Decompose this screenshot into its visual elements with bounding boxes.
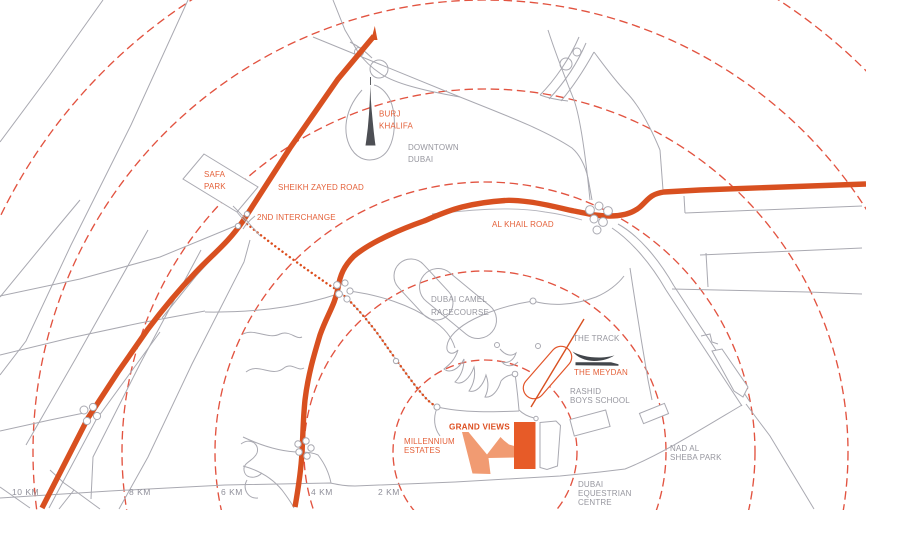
svg-text:GRAND VIEWS: GRAND VIEWS xyxy=(449,423,510,432)
svg-text:SAFA: SAFA xyxy=(204,170,226,179)
svg-text:DUBAI: DUBAI xyxy=(408,155,433,164)
svg-text:EQUESTRIAN: EQUESTRIAN xyxy=(578,489,632,498)
svg-text:BURJ: BURJ xyxy=(379,110,401,119)
svg-text:THE TRACK: THE TRACK xyxy=(573,334,620,343)
svg-text:4 KM: 4 KM xyxy=(311,487,333,497)
svg-text:2ND INTERCHANGE: 2ND INTERCHANGE xyxy=(257,213,336,222)
svg-text:6 KM: 6 KM xyxy=(221,487,243,497)
svg-text:2 KM: 2 KM xyxy=(378,487,400,497)
svg-text:THE MEYDAN: THE MEYDAN xyxy=(574,368,628,377)
svg-text:MILLENNIUM: MILLENNIUM xyxy=(404,437,455,446)
svg-text:KHALIFA: KHALIFA xyxy=(379,122,413,131)
svg-text:DOWNTOWN: DOWNTOWN xyxy=(408,143,459,152)
svg-text:SHEIKH ZAYED ROAD: SHEIKH ZAYED ROAD xyxy=(278,183,364,192)
svg-text:AL KHAIL ROAD: AL KHAIL ROAD xyxy=(492,220,554,229)
svg-text:NAD AL: NAD AL xyxy=(670,444,700,453)
svg-text:DUBAI: DUBAI xyxy=(578,480,603,489)
svg-text:BOYS SCHOOL: BOYS SCHOOL xyxy=(570,396,630,405)
svg-text:DUBAI CAMEL: DUBAI CAMEL xyxy=(431,295,487,304)
svg-text:RACECOURSE: RACECOURSE xyxy=(431,308,489,317)
svg-text:PARK: PARK xyxy=(204,182,226,191)
svg-text:CENTRE: CENTRE xyxy=(578,498,612,507)
svg-text:SHEBA PARK: SHEBA PARK xyxy=(670,453,722,462)
svg-text:10 KM: 10 KM xyxy=(12,487,39,497)
svg-text:8 KM: 8 KM xyxy=(129,487,151,497)
svg-text:RASHID: RASHID xyxy=(570,387,601,396)
svg-text:ESTATES: ESTATES xyxy=(404,446,440,455)
